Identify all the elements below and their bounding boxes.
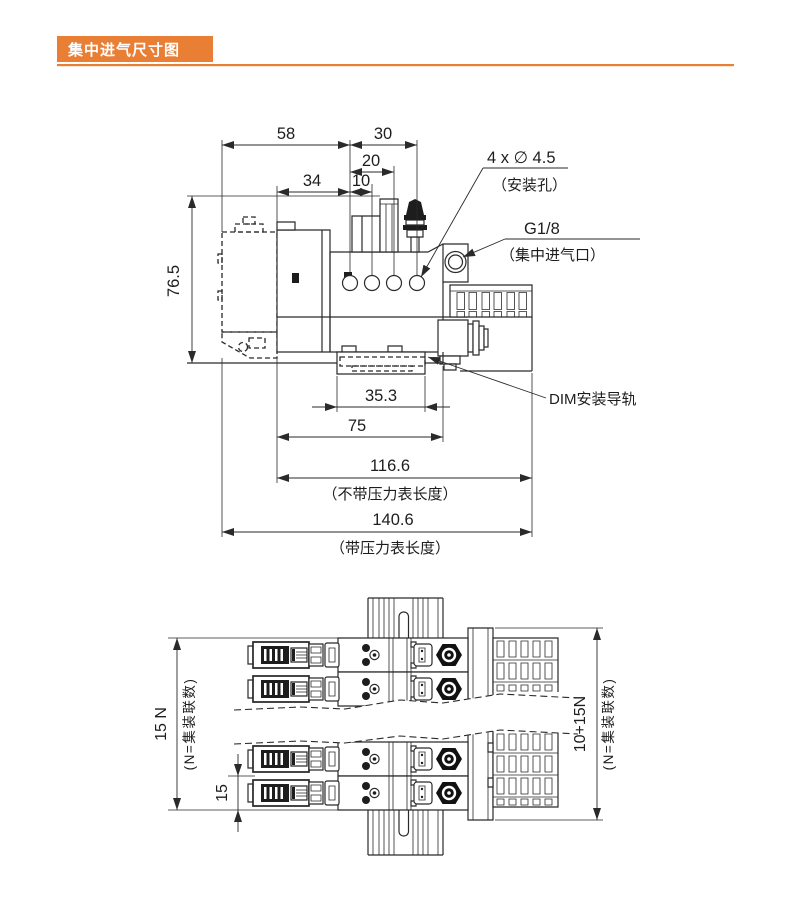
station-row: [248, 742, 468, 776]
callout-inlet-port-note: （集中进气口）: [500, 247, 605, 264]
dim-75: 75: [348, 417, 366, 435]
dim-pitch-15: 15: [214, 784, 231, 802]
note-10-15n: (N=集装联数): [601, 678, 616, 771]
dim-10: 10: [352, 172, 370, 190]
callout-mounting-hole-note: （安装孔）: [492, 177, 567, 194]
note-without-gauge: （不带压力表长度）: [322, 486, 457, 503]
plan-view: 15 N (N=集装联数) 15 10+15N (N=集装联数): [153, 598, 616, 855]
dim-140-6: 140.6: [372, 511, 413, 529]
push-in-fitting: [438, 317, 532, 371]
note-15n: (N=集装联数): [182, 678, 197, 771]
side-view-dimensions: [187, 140, 640, 537]
dim-34: 34: [303, 172, 321, 190]
end-block: [443, 244, 468, 282]
comb-grille: [450, 285, 532, 317]
callout-din-rail: DIM安装导轨: [549, 391, 637, 408]
dim-20: 20: [362, 152, 380, 170]
station-row: [248, 638, 468, 672]
page: 集中进气尺寸图: [0, 0, 800, 900]
dim-15n: 15 N: [153, 707, 170, 741]
dim-10-15n: 10+15N: [572, 696, 589, 753]
side-view: 58 30 20 34 10 76.5 35.3 75 116.6 （不带压力表…: [165, 125, 640, 557]
dim-35-3: 35.3: [365, 387, 397, 405]
callout-inlet-port: G1/8: [524, 220, 560, 238]
plug-fitting: [403, 199, 427, 252]
dim-height-76-5: 76.5: [165, 265, 183, 297]
dim-116-6: 116.6: [370, 457, 410, 475]
comb-block-top: [493, 638, 558, 692]
station-row: [248, 776, 468, 810]
note-with-gauge: （带压力表长度）: [330, 540, 450, 557]
dim-58: 58: [277, 125, 295, 143]
station-row: [248, 672, 468, 706]
comb-block-bottom: [488, 731, 558, 807]
pressure-gauge-dashed: [218, 217, 277, 358]
callout-mounting-hole: 4 x ∅ 4.5: [487, 149, 556, 167]
drawing-canvas: 58 30 20 34 10 76.5 35.3 75 116.6 （不带压力表…: [0, 0, 800, 900]
dim-30: 30: [374, 125, 392, 143]
